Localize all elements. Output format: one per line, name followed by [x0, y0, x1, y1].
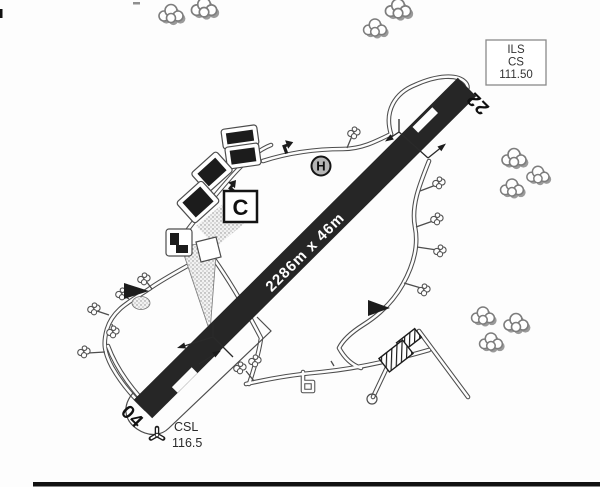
ils-ident: CS	[508, 57, 524, 69]
outlined-building	[196, 237, 221, 262]
aerodrome-chart: 2286m x 46m H C ILS CS 111.5	[0, 0, 600, 487]
ils-frequency: 111.50	[499, 69, 532, 81]
holding-point-label: C	[233, 195, 249, 220]
helipad-icon: H	[312, 157, 331, 176]
vor-frequency-label: 116.5	[172, 436, 202, 450]
helipad-label: H	[316, 159, 325, 174]
airfield-diagram: 2286m x 46m H C ILS CS 111.5	[0, 0, 600, 487]
ils-label: ILS	[507, 44, 525, 56]
holding-point-sign-c: C	[224, 191, 257, 222]
ils-frequency-box: ILS CS 111.50	[486, 40, 546, 85]
vor-ident-label: CSL	[174, 420, 198, 434]
